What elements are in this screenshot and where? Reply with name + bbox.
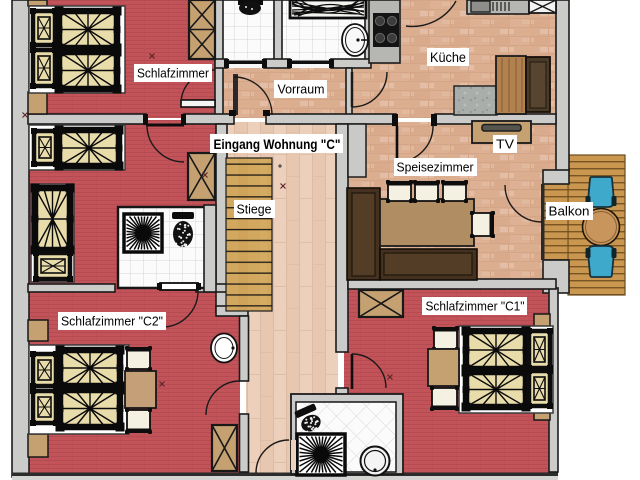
svg-text:Speisezimmer: Speisezimmer <box>397 160 475 175</box>
svg-text:Schlafzimmer: Schlafzimmer <box>137 66 210 81</box>
svg-text:Stiege: Stiege <box>237 203 272 217</box>
svg-text:Eingang Wohnung "C": Eingang Wohnung "C" <box>214 136 341 152</box>
svg-text:Küche: Küche <box>430 50 466 65</box>
svg-text:TV: TV <box>496 137 514 152</box>
svg-text:Schlafzimmer "C2": Schlafzimmer "C2" <box>61 314 163 329</box>
svg-text:Vorraum: Vorraum <box>278 82 325 97</box>
svg-text:Schlafzimmer "C1": Schlafzimmer "C1" <box>426 299 525 314</box>
svg-text:Balkon: Balkon <box>549 204 590 219</box>
